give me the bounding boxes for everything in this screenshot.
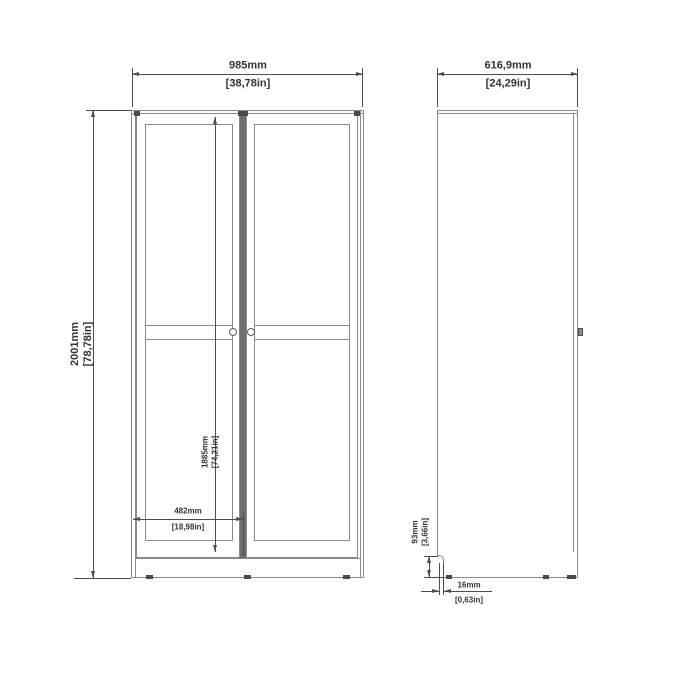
arrowhead <box>427 570 431 577</box>
arrowhead <box>356 72 363 76</box>
dim-leader-right <box>444 591 492 592</box>
door-height-label: 1885mm [74,21in] <box>200 436 219 468</box>
plinth-height-label: 93mm [3,66in] <box>410 518 429 546</box>
arrowhead <box>427 556 431 563</box>
plinth-height-in: [3,66in] <box>420 518 430 546</box>
arrowhead <box>444 589 451 593</box>
side-top-line <box>437 110 578 111</box>
right-door-knob <box>247 328 255 336</box>
technical-drawing: 985mm [38,78in] 2001mm [78,78in] 1885mm … <box>0 0 700 700</box>
side-depth-mm: 616,9mm <box>484 60 531 73</box>
arrowhead <box>213 117 217 124</box>
dim-line <box>133 519 243 520</box>
side-depth-in: [24,29in] <box>484 78 533 91</box>
arrowhead <box>91 571 95 578</box>
left-door-knob <box>229 328 237 336</box>
front-width-in: [38,78in] <box>224 78 273 91</box>
panel-thickness-mm: 16mm <box>457 580 480 589</box>
side-foot-front <box>567 575 576 579</box>
door-gap-strip <box>240 113 246 558</box>
side-foot-mid <box>543 575 549 579</box>
ext-line <box>243 512 244 556</box>
arrowhead <box>236 517 243 521</box>
front-right-side-inner-line <box>360 110 361 578</box>
right-door-midrail-top <box>254 325 350 326</box>
panel-thickness-in: [0,63in] <box>453 595 485 604</box>
front-height-in: [78,78in] <box>82 322 95 367</box>
front-height-label: 2001mm [78,78in] <box>69 322 95 367</box>
ext-line <box>74 578 131 579</box>
front-foot-right <box>343 575 350 579</box>
arrowhead <box>213 545 217 552</box>
plinth-height-mm: 93mm <box>410 518 420 546</box>
dim-line <box>132 74 363 75</box>
front-height-mm: 2001mm <box>69 322 82 367</box>
right-door-midrail-bottom <box>254 339 350 340</box>
front-width-mm: 985mm <box>229 60 267 73</box>
dim-line <box>215 117 216 552</box>
left-door-midrail-top <box>145 325 233 326</box>
front-foot-left <box>146 575 153 579</box>
arrowhead <box>91 110 95 117</box>
right-door-panel <box>254 124 350 541</box>
side-door-panel-line <box>573 113 574 552</box>
arrowhead <box>437 72 444 76</box>
arrowhead <box>432 589 439 593</box>
left-door-midrail-bottom <box>145 339 233 340</box>
door-height-in: [74,21in] <box>210 436 220 468</box>
left-door-panel <box>145 124 233 541</box>
front-top-tick-right <box>354 111 360 116</box>
side-top-inner-line <box>437 113 578 114</box>
arrowhead <box>571 72 578 76</box>
dim-line <box>437 74 578 75</box>
door-width-mm: 482mm <box>174 506 202 515</box>
side-front-edge <box>577 110 578 578</box>
arrowhead <box>132 72 139 76</box>
side-foot-back <box>446 575 452 579</box>
front-foot-center <box>244 575 251 579</box>
side-back-edge <box>437 110 438 556</box>
front-top-tick-left <box>134 111 140 116</box>
front-top-tick-center <box>238 111 248 116</box>
side-door-knob <box>578 328 583 336</box>
ext-line <box>439 563 440 595</box>
door-width-in: [18,98in] <box>170 522 206 531</box>
door-height-mm: 1885mm <box>200 436 210 468</box>
ext-line <box>424 577 444 578</box>
arrowhead <box>133 517 140 521</box>
side-bottom-line <box>443 577 578 578</box>
